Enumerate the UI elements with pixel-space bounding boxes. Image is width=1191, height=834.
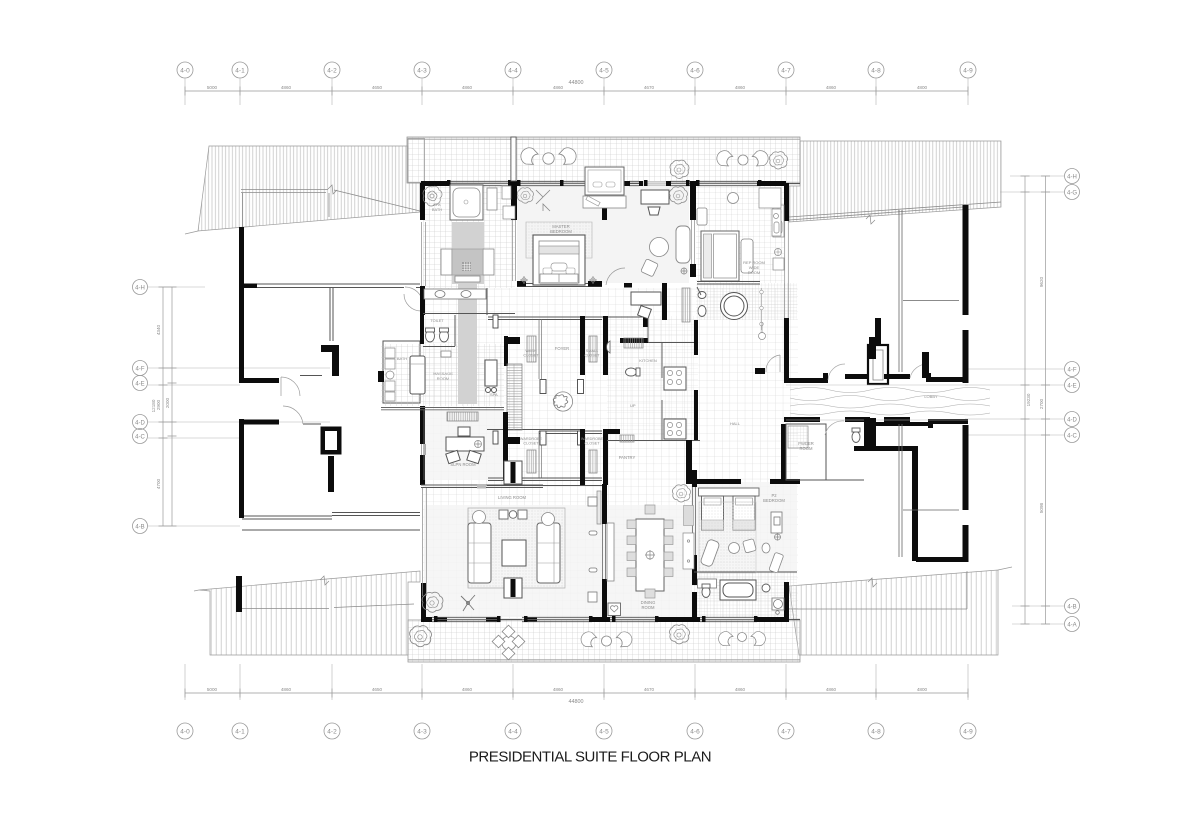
svg-text:12180: 12180 — [151, 399, 156, 412]
svg-text:4-0: 4-0 — [180, 68, 190, 75]
svg-text:44800: 44800 — [569, 699, 584, 705]
svg-text:4860: 4860 — [281, 687, 292, 692]
svg-text:CLOSET: CLOSET — [584, 442, 600, 446]
svg-text:4860: 4860 — [462, 687, 473, 692]
svg-text:2900: 2900 — [156, 399, 161, 410]
svg-text:CLOSET: CLOSET — [584, 354, 600, 358]
svg-text:2700: 2700 — [1039, 398, 1044, 409]
svg-text:LIVING ROOM: LIVING ROOM — [498, 495, 526, 500]
svg-text:WARDROBE: WARDROBE — [520, 437, 543, 441]
svg-text:4-B: 4-B — [135, 525, 144, 531]
svg-text:TOILET: TOILET — [430, 319, 444, 323]
svg-text:4-A: 4-A — [1067, 623, 1076, 629]
svg-text:4-0: 4-0 — [180, 729, 190, 736]
svg-text:CLOSET: CLOSET — [523, 354, 539, 358]
svg-text:4-9: 4-9 — [963, 729, 973, 736]
svg-text:4-7: 4-7 — [781, 68, 791, 75]
svg-text:9620: 9620 — [1039, 276, 1044, 287]
svg-text:SMALL: SMALL — [586, 349, 598, 353]
svg-text:44800: 44800 — [569, 80, 584, 86]
svg-text:4-4: 4-4 — [508, 68, 518, 75]
svg-text:WASH: WASH — [525, 349, 537, 353]
svg-text:2000: 2000 — [165, 397, 170, 408]
svg-text:SPA: SPA — [490, 392, 498, 397]
svg-text:PRESIDENTIAL SUITE FLOOR PLAN: PRESIDENTIAL SUITE FLOOR PLAN — [469, 749, 711, 766]
svg-text:4860: 4860 — [735, 687, 746, 692]
svg-text:4800: 4800 — [917, 85, 928, 90]
svg-text:4-2: 4-2 — [327, 729, 337, 736]
svg-text:4-B: 4-B — [1067, 605, 1076, 611]
svg-text:4-8: 4-8 — [871, 729, 881, 736]
svg-text:4-2: 4-2 — [327, 68, 337, 75]
svg-text:ROOM: ROOM — [748, 270, 760, 275]
svg-text:4-H: 4-H — [1067, 175, 1077, 181]
svg-text:4-1: 4-1 — [235, 68, 245, 75]
svg-text:4860: 4860 — [553, 687, 564, 692]
svg-text:4-1: 4-1 — [235, 729, 245, 736]
svg-text:CLOSET: CLOSET — [523, 442, 539, 446]
svg-text:4860: 4860 — [826, 687, 837, 692]
svg-text:4860: 4860 — [462, 85, 473, 90]
svg-text:4670: 4670 — [644, 85, 655, 90]
svg-text:4-C: 4-C — [1067, 434, 1077, 440]
svg-text:4800: 4800 — [917, 687, 928, 692]
svg-text:SLPN ROOM: SLPN ROOM — [450, 462, 476, 467]
svg-text:4-F: 4-F — [136, 367, 145, 373]
svg-text:4-E: 4-E — [1067, 384, 1076, 390]
svg-text:4670: 4670 — [644, 687, 655, 692]
svg-text:BEDROOM: BEDROOM — [550, 229, 572, 234]
svg-text:4-7: 4-7 — [781, 729, 791, 736]
svg-text:LOBBY: LOBBY — [924, 394, 938, 399]
svg-text:4650: 4650 — [372, 85, 383, 90]
svg-text:WARDROBE: WARDROBE — [581, 437, 604, 441]
svg-text:4860: 4860 — [735, 85, 746, 90]
svg-text:UP: UP — [630, 403, 636, 408]
svg-text:5098: 5098 — [1039, 502, 1044, 513]
svg-text:4-5: 4-5 — [599, 729, 609, 736]
svg-text:4-9: 4-9 — [963, 68, 973, 75]
svg-text:4-E: 4-E — [135, 382, 144, 388]
svg-text:4650: 4650 — [372, 687, 383, 692]
svg-text:4-D: 4-D — [1067, 418, 1077, 424]
svg-text:4860: 4860 — [553, 85, 564, 90]
svg-text:4860: 4860 — [281, 85, 292, 90]
svg-text:4-F: 4-F — [1068, 368, 1077, 374]
svg-text:4-4: 4-4 — [508, 729, 518, 736]
svg-text:4-C: 4-C — [135, 435, 145, 441]
svg-text:4340: 4340 — [156, 324, 161, 335]
svg-text:4860: 4860 — [826, 85, 837, 90]
svg-text:4-6: 4-6 — [690, 68, 700, 75]
svg-text:5000: 5000 — [207, 85, 218, 90]
svg-text:BEDROOM: BEDROOM — [763, 498, 785, 503]
svg-text:4-5: 4-5 — [599, 68, 609, 75]
svg-text:4700: 4700 — [156, 478, 161, 489]
svg-text:4-H: 4-H — [135, 286, 145, 292]
svg-text:FOYER: FOYER — [555, 346, 569, 351]
svg-text:ROOM: ROOM — [641, 605, 655, 610]
svg-text:4-3: 4-3 — [417, 68, 427, 75]
svg-text:4-6: 4-6 — [690, 729, 700, 736]
svg-text:4-3: 4-3 — [417, 729, 427, 736]
svg-text:4-G: 4-G — [1067, 191, 1077, 197]
svg-text:PANTRY: PANTRY — [619, 455, 636, 460]
svg-text:4-D: 4-D — [135, 421, 145, 427]
svg-text:5000: 5000 — [207, 687, 218, 692]
svg-text:19230: 19230 — [1026, 393, 1031, 406]
svg-text:4-8: 4-8 — [871, 68, 881, 75]
